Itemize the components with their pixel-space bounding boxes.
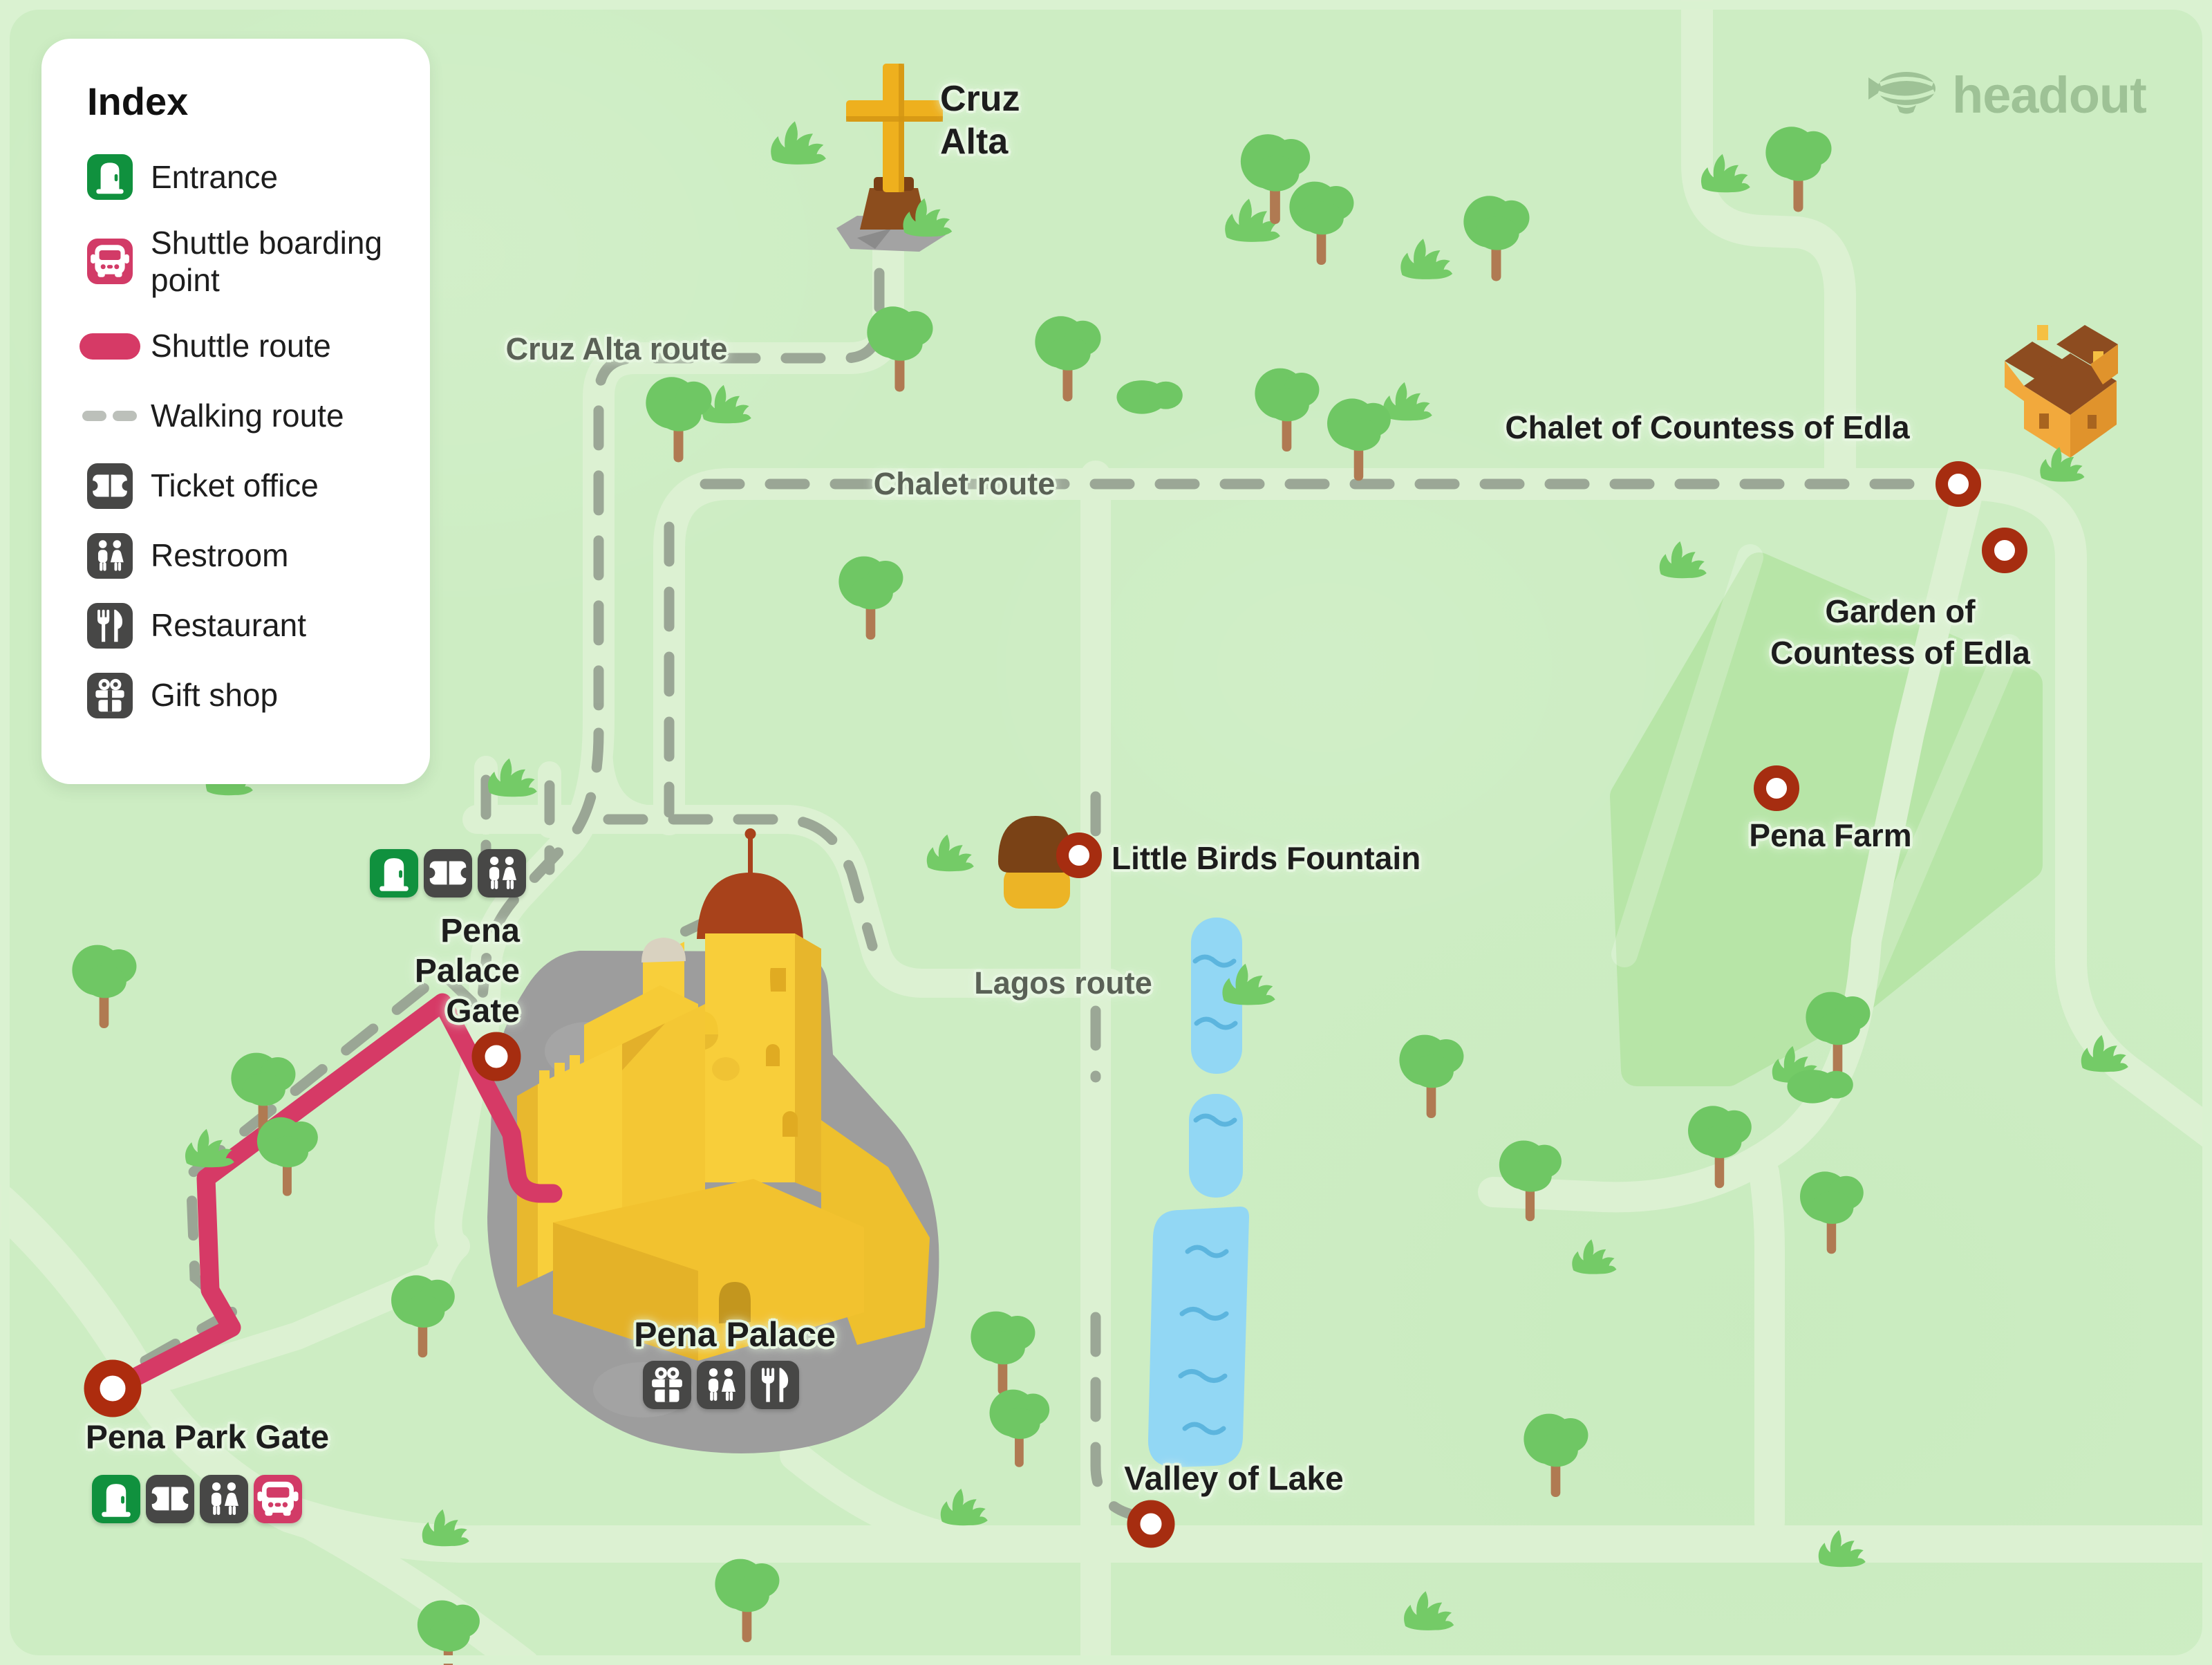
label-pena-palace: Pena Palace <box>634 1314 836 1355</box>
ticket-office-icon <box>146 1475 194 1523</box>
restroom-icon <box>200 1475 248 1523</box>
bus-icon <box>87 239 133 284</box>
marker-little-birds-fountain <box>1062 839 1096 872</box>
walking-route-swatch <box>87 393 133 439</box>
label-lagos-route: Lagos route <box>974 965 1152 1001</box>
label-chalet-route: Chalet route <box>874 466 1056 502</box>
marker-pena-palace-gate <box>478 1039 514 1075</box>
gift-shop-icon <box>643 1361 691 1409</box>
label-pena-palace-gate: Pena Palace Gate <box>415 911 520 1032</box>
restaurant-icon <box>87 603 133 649</box>
label-little-birds-fountain: Little Birds Fountain <box>1112 839 1421 877</box>
headout-logo: headout <box>1866 64 2146 126</box>
marker-pena-farm <box>1760 772 1793 805</box>
marker-garden <box>1988 534 2021 567</box>
door-icon <box>87 154 133 200</box>
ticket-office-icon <box>424 849 472 897</box>
legend-title: Index <box>87 79 409 124</box>
legend-item-walking-route: Walking route <box>87 393 409 439</box>
entrance-icon <box>370 849 418 897</box>
label-pena-park-gate: Pena Park Gate <box>86 1419 329 1457</box>
chalet-building <box>2005 325 2118 458</box>
gift-icon <box>87 673 133 718</box>
shuttle-route-swatch <box>87 324 133 369</box>
restroom-icon <box>478 849 526 897</box>
shuttle-boarding-icon <box>254 1475 302 1523</box>
marker-pena-park-gate <box>92 1368 133 1409</box>
label-pena-farm: Pena Farm <box>1749 817 1911 854</box>
blimp-icon <box>1866 64 1942 126</box>
legend-item-gift-shop: Gift shop <box>87 673 409 718</box>
entrance-icon <box>92 1475 140 1523</box>
restroom-icon <box>697 1361 745 1409</box>
ticket-icon <box>87 463 133 509</box>
label-garden: Garden of Countess of Edla <box>1770 590 2030 673</box>
legend-item-restroom: Restroom <box>87 533 409 579</box>
label-chalet: Chalet of Countess of Edla <box>1505 409 1909 446</box>
label-cruz-alta: Cruz Alta <box>940 77 1020 163</box>
label-valley-of-lake: Valley of Lake <box>1124 1460 1344 1498</box>
legend-item-ticket-office: Ticket office <box>87 463 409 509</box>
restaurant-icon <box>751 1361 799 1409</box>
legend-item-restaurant: Restaurant <box>87 603 409 649</box>
legend-panel: Index Entrance Shuttle boarding point Sh… <box>41 39 430 784</box>
legend-item-entrance: Entrance <box>87 154 409 200</box>
legend-item-shuttle-boarding-point: Shuttle boarding point <box>87 224 409 299</box>
legend-item-shuttle-route: Shuttle route <box>87 324 409 369</box>
label-cruz-alta-route: Cruz Alta route <box>506 331 728 367</box>
marker-chalet <box>1942 467 1975 501</box>
restroom-icon <box>87 533 133 579</box>
marker-valley-of-lake <box>1134 1507 1168 1541</box>
